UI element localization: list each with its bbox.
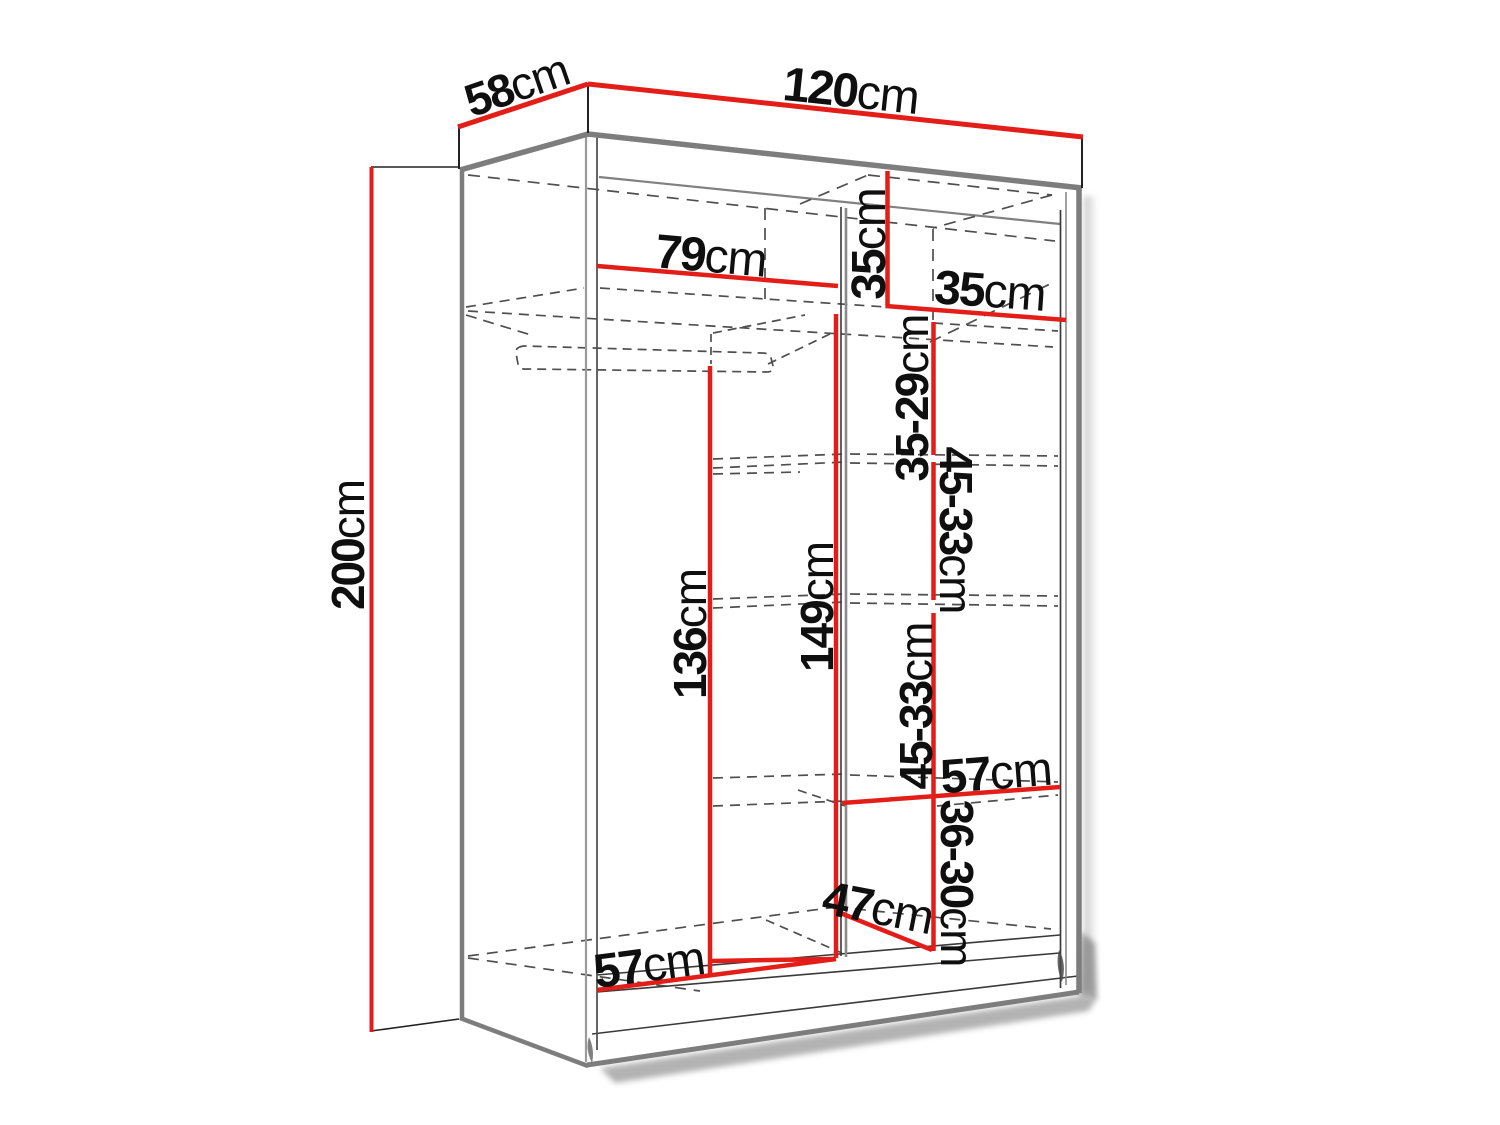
svg-text:200cm: 200cm [322, 480, 374, 610]
svg-text:35cm: 35cm [933, 261, 1048, 322]
svg-text:45-33cm: 45-33cm [890, 623, 942, 790]
svg-text:45-33cm: 45-33cm [930, 447, 982, 614]
svg-text:35cm: 35cm [843, 188, 896, 299]
svg-text:57cm: 57cm [938, 743, 1053, 805]
svg-text:79cm: 79cm [653, 225, 769, 288]
svg-text:136cm: 136cm [664, 569, 716, 699]
svg-text:36-30cm: 36-30cm [931, 800, 983, 967]
svg-text:149cm: 149cm [791, 542, 843, 672]
